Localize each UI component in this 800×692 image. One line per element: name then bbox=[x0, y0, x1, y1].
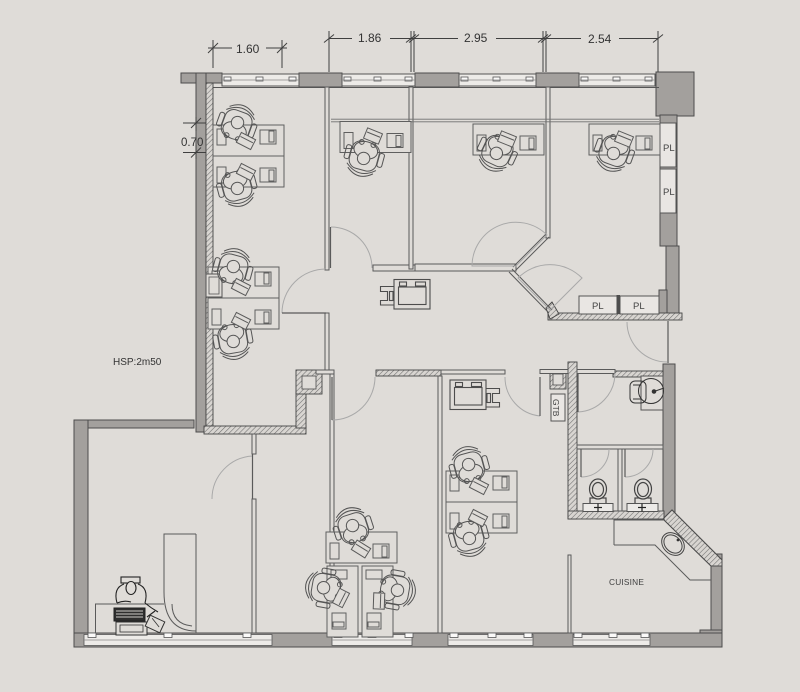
svg-text:2.54: 2.54 bbox=[588, 32, 612, 46]
svg-text:2.95: 2.95 bbox=[464, 31, 488, 45]
svg-text:PL: PL bbox=[663, 143, 675, 154]
svg-text:PL: PL bbox=[663, 187, 675, 198]
svg-text:0.70: 0.70 bbox=[181, 137, 203, 149]
svg-text:HSP:2m50: HSP:2m50 bbox=[113, 357, 162, 368]
svg-text:PL: PL bbox=[592, 301, 604, 312]
svg-text:GTB: GTB bbox=[551, 399, 561, 417]
svg-text:1.60: 1.60 bbox=[236, 42, 260, 56]
svg-text:CUISINE: CUISINE bbox=[609, 577, 644, 587]
svg-text:PL: PL bbox=[633, 301, 645, 312]
svg-text:1.86: 1.86 bbox=[358, 31, 382, 45]
